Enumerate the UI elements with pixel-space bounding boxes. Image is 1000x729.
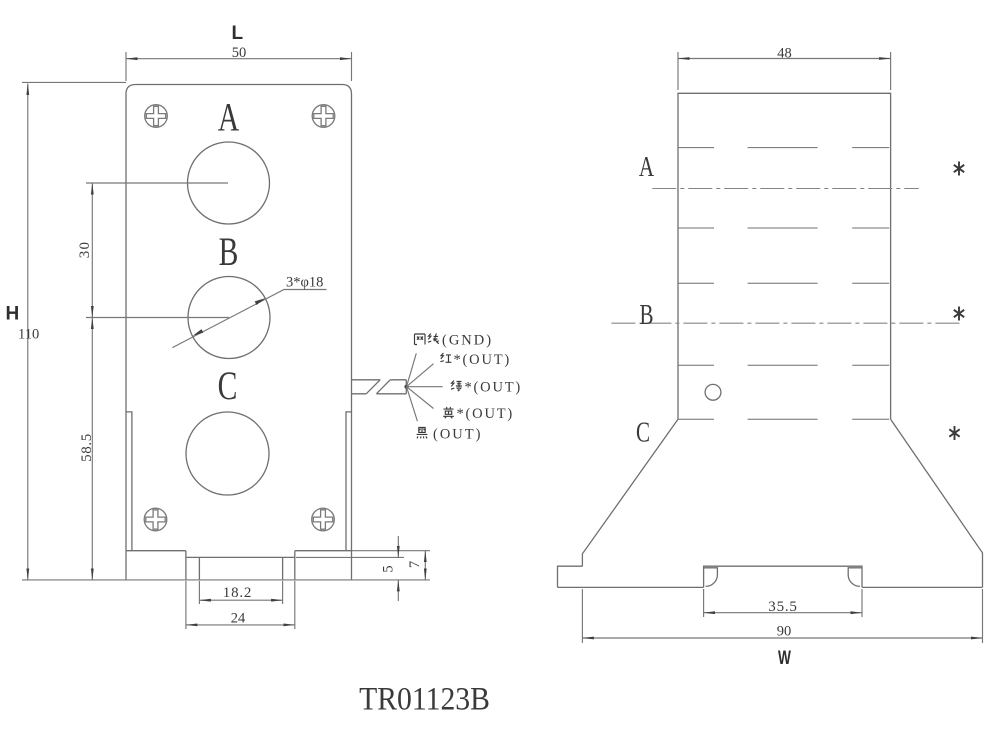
svg-text:A: A	[218, 95, 240, 139]
svg-text:L: L	[231, 23, 243, 44]
svg-text:7: 7	[407, 561, 423, 568]
svg-text:5: 5	[380, 565, 396, 572]
svg-text:110: 110	[18, 327, 39, 343]
svg-text:90: 90	[777, 624, 792, 640]
svg-text:*(OUT): *(OUT)	[465, 380, 523, 396]
svg-text:W: W	[778, 647, 791, 669]
svg-text:24: 24	[231, 611, 246, 627]
svg-text:B: B	[639, 300, 653, 331]
svg-text:*(OUT): *(OUT)	[454, 352, 512, 368]
svg-text:58.5: 58.5	[79, 433, 95, 462]
svg-text:H: H	[6, 304, 20, 325]
svg-text:B: B	[219, 230, 239, 274]
svg-text:(GND): (GND)	[442, 333, 493, 349]
svg-text:35.5: 35.5	[768, 599, 797, 615]
svg-text:50: 50	[232, 45, 247, 61]
svg-text:TR01123B: TR01123B	[359, 680, 490, 717]
svg-text:*(OUT): *(OUT)	[457, 406, 515, 422]
svg-text:3*φ18: 3*φ18	[286, 275, 323, 291]
svg-text:30: 30	[77, 241, 93, 258]
svg-text:A: A	[639, 152, 654, 183]
svg-text:C: C	[218, 364, 238, 408]
svg-text:48: 48	[777, 46, 792, 62]
svg-text:18.2: 18.2	[223, 585, 252, 601]
svg-text:(OUT): (OUT)	[433, 427, 482, 443]
svg-text:C: C	[636, 418, 650, 449]
